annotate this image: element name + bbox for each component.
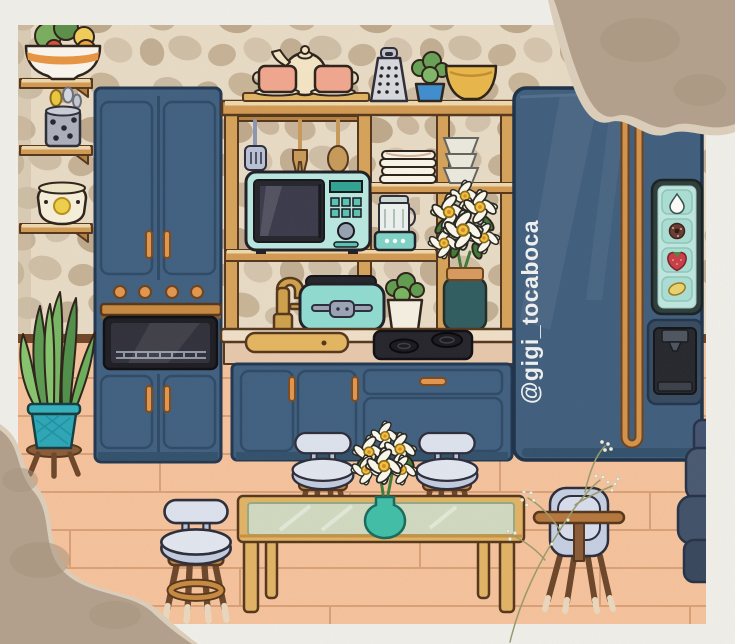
paper-grain-overlay: [0, 0, 735, 644]
kitchen-scene: @gigi_tocaboca: [0, 0, 735, 644]
